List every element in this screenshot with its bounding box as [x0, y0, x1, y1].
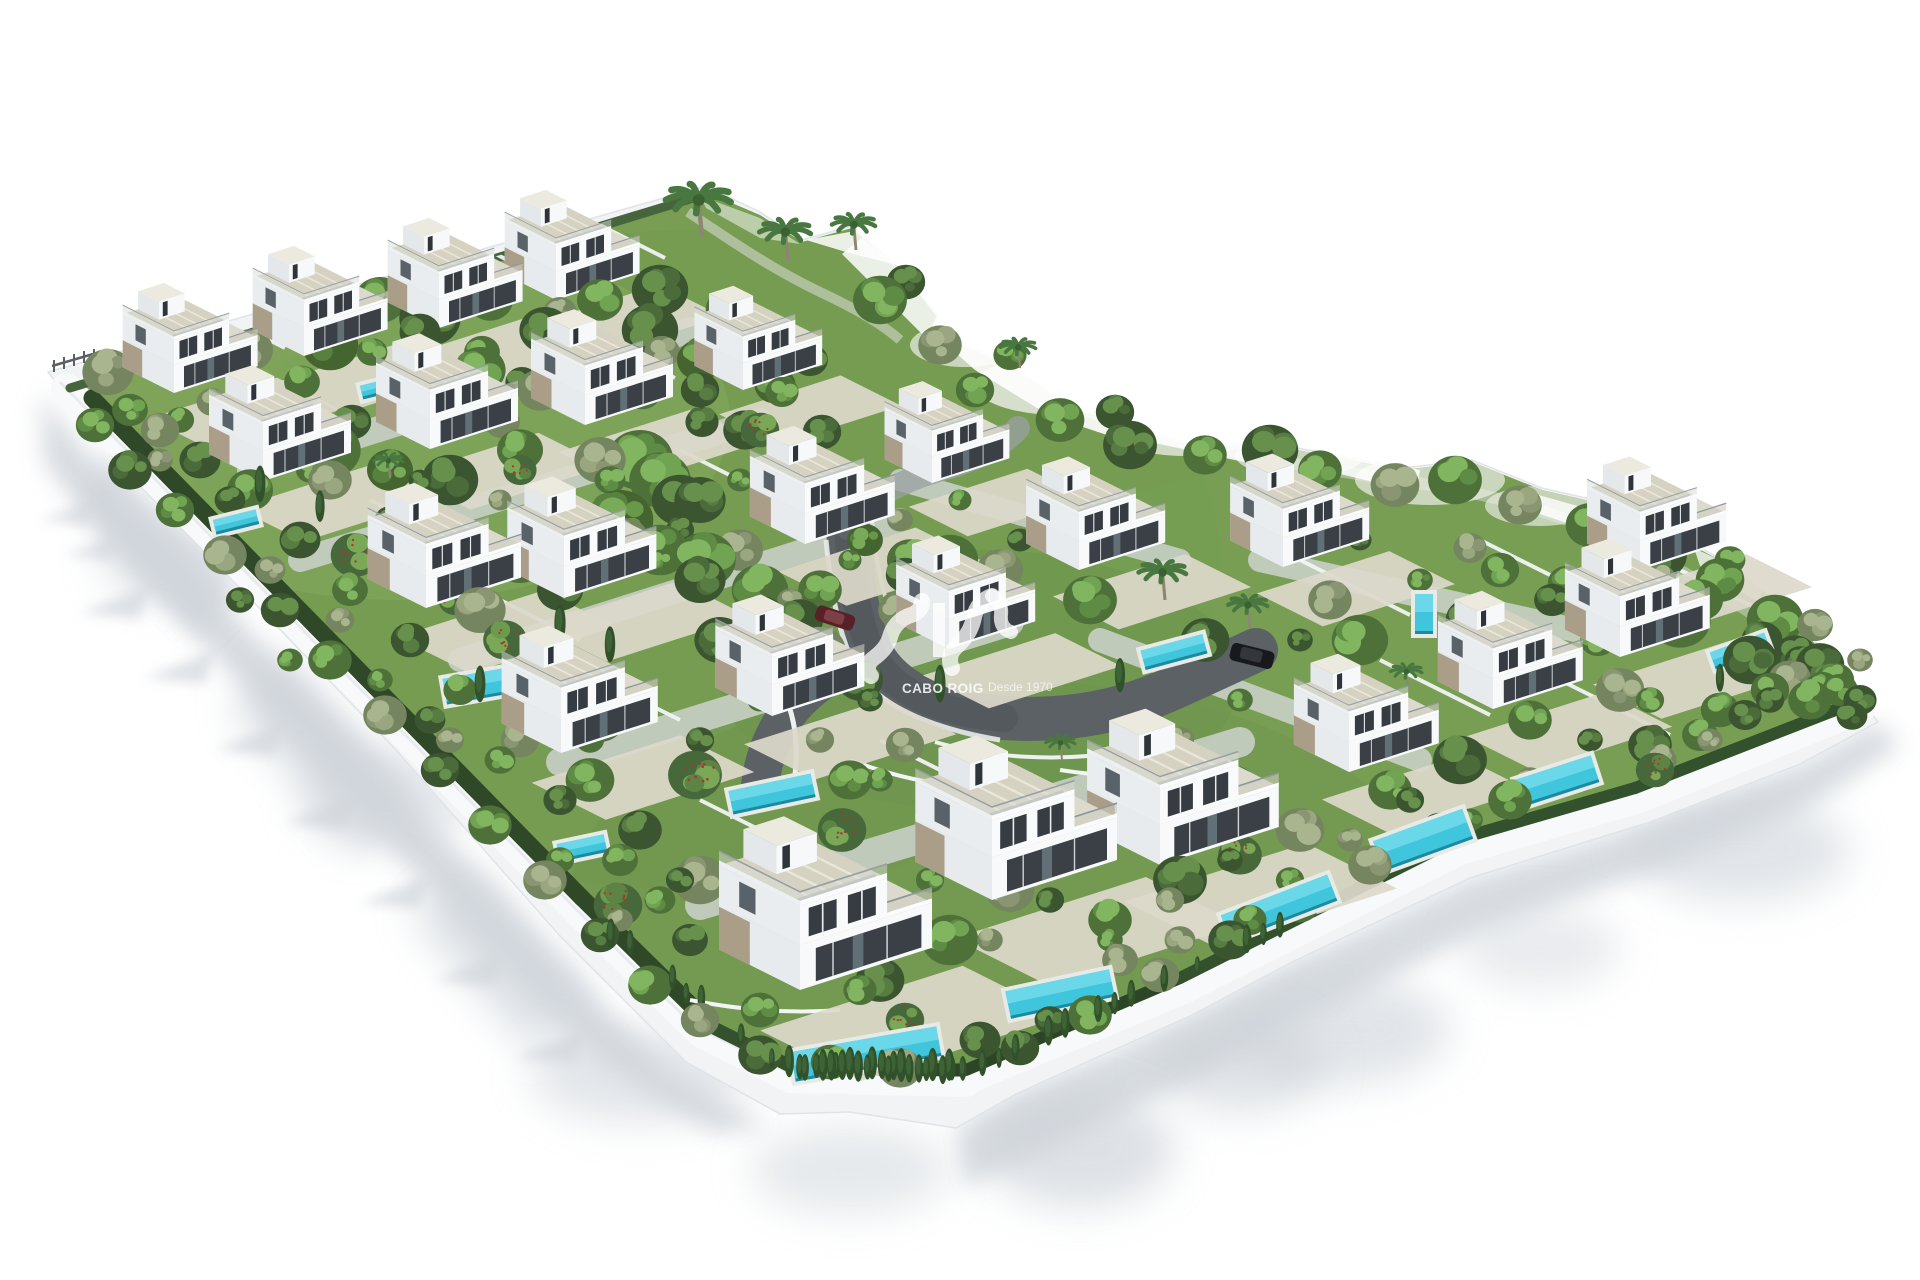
- svg-text:Desde 1970: Desde 1970: [988, 680, 1053, 694]
- svg-text:CABO ROIG: CABO ROIG: [902, 681, 984, 696]
